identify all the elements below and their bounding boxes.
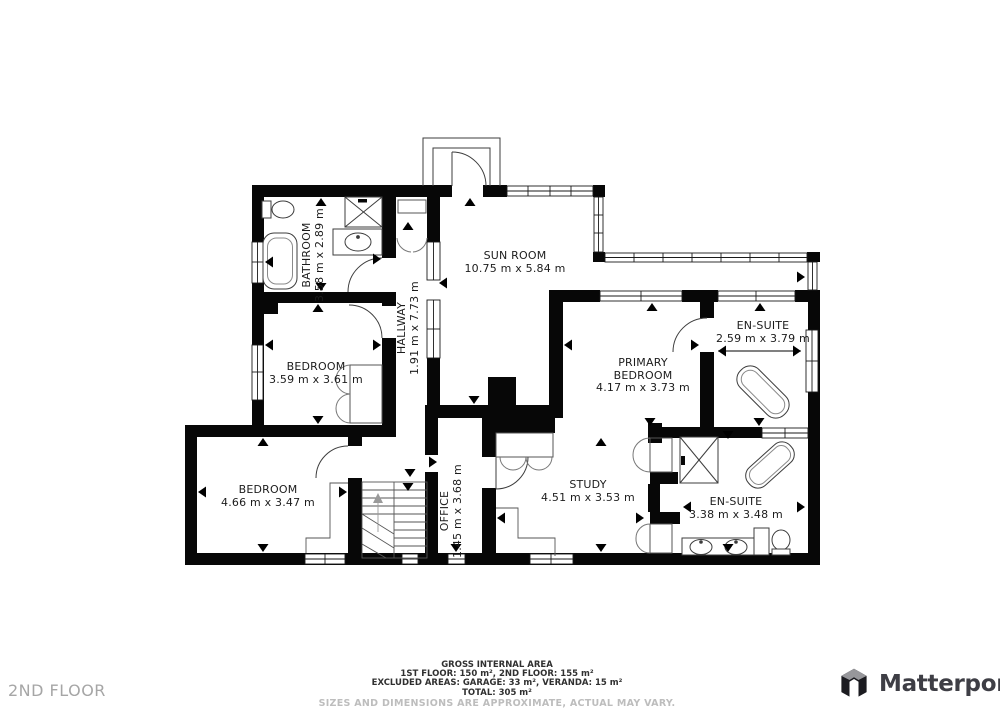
bathtub <box>732 361 794 423</box>
room-name: PRIMARY BEDROOM <box>603 357 683 382</box>
cabinet <box>754 528 769 555</box>
room-dims: 3.58 m x 2.89 m <box>314 195 327 315</box>
shower <box>345 197 382 227</box>
door-arc-bedroom-west <box>349 305 382 338</box>
room-label-en-suite-south: EN-SUITE 3.38 m x 3.48 m <box>656 496 816 521</box>
room-dims: 10.75 m x 5.84 m <box>435 263 595 276</box>
room-name: BATHROOM <box>301 195 314 315</box>
gross-internal-area-note: GROSS INTERNAL AREA 1ST FLOOR: 150 m², 2… <box>250 661 744 708</box>
shower <box>680 437 718 483</box>
room-label-hallway: HALLWAY 1.91 m x 7.73 m <box>396 268 422 388</box>
room-name: SUN ROOM <box>435 250 595 263</box>
floor-plan-drawing <box>0 0 1000 708</box>
en-suite-north-fixtures <box>732 361 794 423</box>
room-label-bedroom-southwest: BEDROOM 4.66 m x 3.47 m <box>188 484 348 509</box>
room-label-bathroom: BATHROOM 3.58 m x 2.89 m <box>301 195 327 315</box>
toilet <box>262 201 294 218</box>
disclaimer: SIZES AND DIMENSIONS ARE APPROXIMATE, AC… <box>250 699 744 708</box>
room-name: STUDY <box>508 479 668 492</box>
room-label-primary-bedroom: PRIMARY BEDROOM 4.17 m x 3.73 m <box>583 357 703 395</box>
entry-vestibule <box>423 138 500 186</box>
room-label-bedroom-west: BEDROOM 3.59 m x 3.61 m <box>236 361 396 386</box>
toilet <box>772 530 790 555</box>
room-dims: 2.59 m x 3.79 m <box>688 333 838 346</box>
bathtub <box>741 437 799 492</box>
floor-label: 2ND FLOOR <box>8 681 106 700</box>
room-label-study: STUDY 4.51 m x 3.53 m <box>508 479 668 504</box>
room-dims: 4.51 m x 3.53 m <box>508 492 668 505</box>
room-dims: 3.59 m x 3.61 m <box>236 374 396 387</box>
room-label-en-suite-north: EN-SUITE 2.59 m x 3.79 m <box>688 320 838 345</box>
room-dims: 1.45 m x 3.68 m <box>452 451 465 571</box>
room-name: BEDROOM <box>236 361 396 374</box>
room-dims: 4.66 m x 3.47 m <box>188 497 348 510</box>
floorplan-page: { "floor_label": "2ND FLOOR", "brand": {… <box>0 0 1000 708</box>
measure-line-en-suite-north <box>718 346 801 357</box>
door-arc-bedroom-southwest <box>316 446 348 478</box>
sink <box>333 229 382 255</box>
room-dims: 4.17 m x 3.73 m <box>583 382 703 395</box>
room-label-sun-room: SUN ROOM 10.75 m x 5.84 m <box>435 250 595 275</box>
room-name: HALLWAY <box>396 268 409 388</box>
door-arc-bathroom <box>348 258 382 292</box>
room-name: BEDROOM <box>188 484 348 497</box>
matterport-wordmark: Matterport <box>879 671 1000 697</box>
room-dims: 3.38 m x 3.48 m <box>656 509 816 522</box>
matterport-logo: Matterport <box>836 666 1000 702</box>
room-dims: 1.91 m x 7.73 m <box>409 268 422 388</box>
room-name: EN-SUITE <box>688 320 838 333</box>
room-name: EN-SUITE <box>656 496 816 509</box>
matterport-icon <box>836 666 872 702</box>
area-line3: TOTAL: 305 m² <box>250 689 744 698</box>
room-name: OFFICE <box>439 451 452 571</box>
room-label-office: OFFICE 1.45 m x 3.68 m <box>439 451 465 571</box>
double-sink <box>682 538 754 555</box>
